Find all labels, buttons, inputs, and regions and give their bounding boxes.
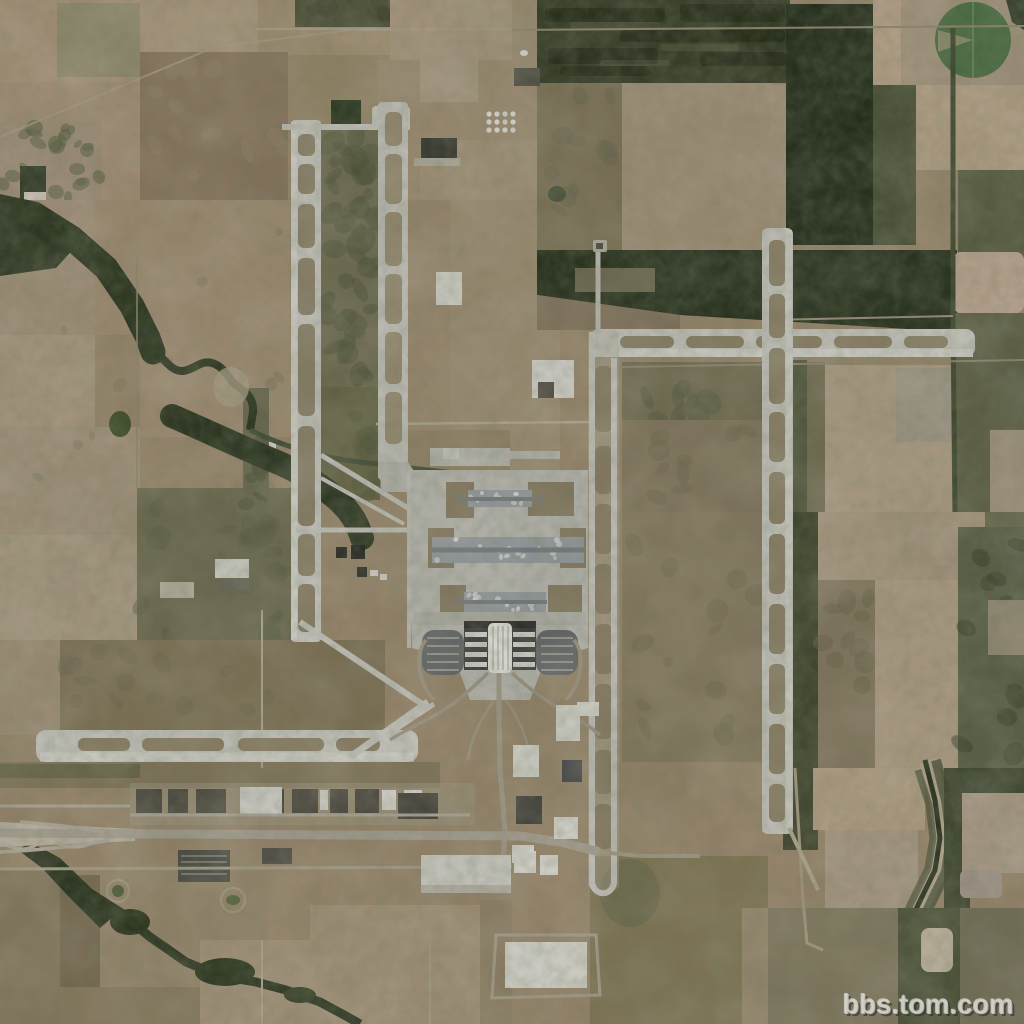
svg-text:bbs.tom.com: bbs.tom.com: [843, 989, 1014, 1020]
